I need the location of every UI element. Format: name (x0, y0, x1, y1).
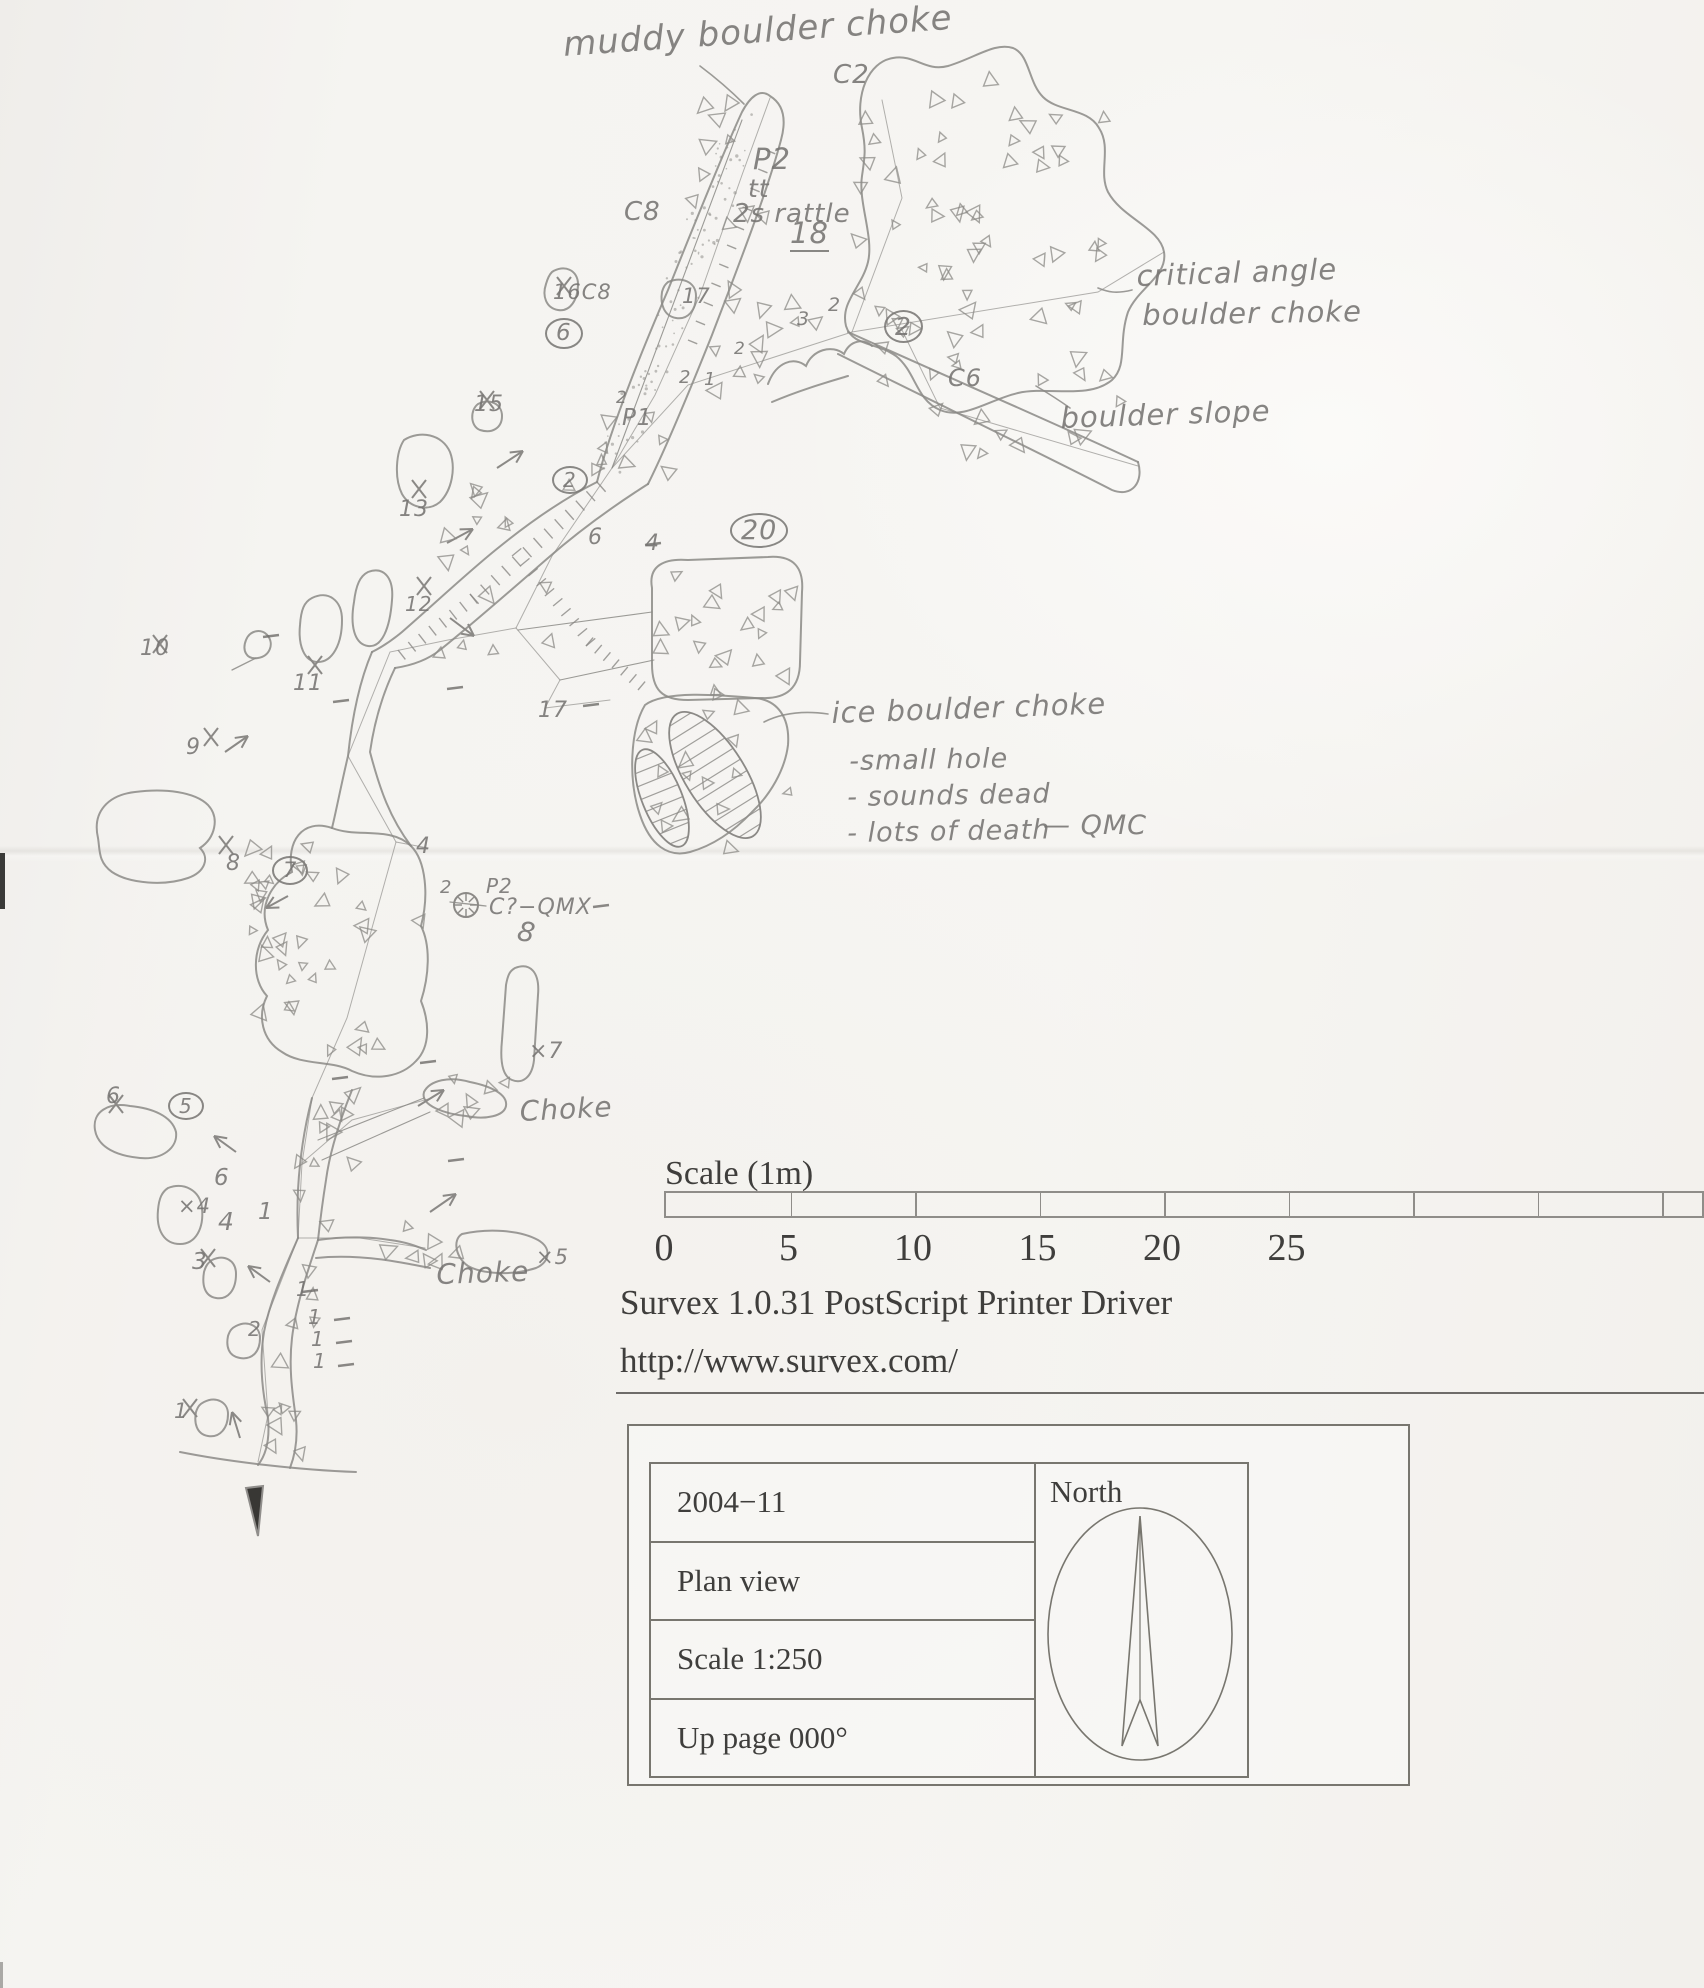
map-annotation: 1 (296, 1279, 310, 1299)
info-row-scale: Scale 1:250 (651, 1621, 1034, 1700)
map-annotation: C6 (948, 366, 982, 390)
scale-tick-label: 15 (1019, 1226, 1057, 1270)
map-annotation: 4 (416, 836, 431, 858)
map-annotation: Choke (519, 1093, 613, 1126)
map-annotation: — QMC (1043, 812, 1147, 839)
map-annotation: 7 (272, 856, 308, 885)
map-annotation: P1 (622, 407, 653, 430)
scale-tick-label: 10 (894, 1226, 932, 1270)
scale-tick-label: 5 (779, 1226, 798, 1270)
scale-tick-label: 25 (1268, 1226, 1306, 1270)
scale-tick (915, 1193, 917, 1216)
map-annotation: ×4 (178, 1196, 211, 1217)
map-annotation: C2 (833, 62, 870, 88)
map-annotation: C8 (624, 199, 661, 225)
map-annotation: 12 (405, 594, 432, 614)
map-annotation: 15 (474, 394, 504, 416)
map-annotation: 2 (679, 369, 691, 387)
map-annotation: 1 (258, 1201, 274, 1224)
scan-edge-mark (0, 853, 5, 909)
map-annotation: 3 (797, 310, 810, 329)
map-annotation: 2 (248, 1319, 262, 1339)
credit-divider (616, 1392, 1704, 1394)
map-annotation: 5 (168, 1092, 204, 1120)
map-annotation: 1 (311, 1329, 325, 1349)
scale-tick (1289, 1193, 1291, 1216)
survex-credit: Survex 1.0.31 PostScript Printer Driver (620, 1283, 1172, 1323)
map-annotation: 1 (313, 1351, 327, 1371)
map-annotation: critical angle (1136, 255, 1338, 291)
map-annotation: 6 (106, 1086, 121, 1108)
scale-title: Scale (1m) (665, 1155, 813, 1193)
map-annotation: tt (748, 176, 770, 201)
scan-edge-mark (0, 1962, 3, 1988)
map-annotation: 1 (308, 1307, 322, 1327)
survey-info-table: 2004−11 Plan view Scale 1:250 Up page 00… (649, 1462, 1249, 1778)
map-annotation: 10 (140, 638, 170, 660)
map-annotation: 2 (828, 296, 841, 315)
map-annotation: 6 (545, 318, 583, 349)
map-annotation: 1 (704, 371, 716, 389)
scale-tick (1040, 1193, 1042, 1216)
survey-info-box: 2004−11 Plan view Scale 1:250 Up page 00… (627, 1424, 1410, 1786)
map-annotation: - lots of death (847, 816, 1051, 847)
map-annotation: 2 (440, 879, 452, 897)
map-annotation: 6 (588, 527, 603, 549)
scale-tick-label: 20 (1143, 1226, 1181, 1270)
map-annotation: 18 (790, 219, 829, 252)
map-annotation: 11 (293, 673, 323, 695)
info-rows: 2004−11 Plan view Scale 1:250 Up page 00… (651, 1464, 1034, 1776)
map-annotation: 8 (226, 853, 241, 875)
scale-bar (664, 1191, 1704, 1218)
map-annotation: ×7 (529, 1041, 563, 1063)
map-annotation: - sounds dead (847, 780, 1051, 811)
north-compass-icon (1036, 1464, 1249, 1776)
survex-url: http://www.survex.com/ (620, 1341, 958, 1381)
map-annotation: 20 (730, 513, 788, 548)
map-annotation: P2 (486, 876, 513, 896)
scale-tick-label: 0 (655, 1226, 674, 1270)
info-row-view: Plan view (651, 1543, 1034, 1622)
map-annotation: C?−QMX (489, 897, 592, 919)
map-annotation: 2 (552, 466, 588, 494)
map-annotation: 17 (682, 286, 711, 307)
map-annotation: 9 (186, 737, 201, 759)
map-annotation: -small hole (849, 745, 1008, 775)
map-annotation: 1 (174, 1401, 188, 1422)
scanned-cave-survey-page: muddy boulder chokeC2P2tt2s rattle18C816… (0, 0, 1704, 1988)
map-annotation: 2 (884, 310, 923, 343)
map-annotation: 2 (734, 341, 746, 358)
map-annotation: 4 (218, 1209, 235, 1234)
map-annotation: 17 (538, 700, 568, 722)
scale-tick (1538, 1193, 1540, 1216)
map-annotation: P2 (753, 145, 791, 174)
map-annotation: 6 (214, 1167, 230, 1190)
map-annotation: Choke (436, 1258, 530, 1289)
north-cell: North (1034, 1464, 1247, 1776)
info-row-uppage: Up page 000° (651, 1700, 1034, 1777)
map-annotation: 4 (645, 533, 660, 555)
info-row-date: 2004−11 (651, 1464, 1034, 1543)
map-annotation: boulder slope (1060, 397, 1271, 433)
map-annotation: 13 (399, 499, 429, 521)
map-annotation: boulder choke (1142, 297, 1362, 330)
scale-tick (791, 1193, 793, 1216)
map-annotation: ×5 (536, 1247, 569, 1268)
scale-tick (1662, 1193, 1664, 1216)
scale-tick (1413, 1193, 1415, 1216)
scale-tick (1164, 1193, 1166, 1216)
map-annotation: 16C8 (553, 282, 612, 303)
map-annotation: 3 (192, 1251, 208, 1274)
